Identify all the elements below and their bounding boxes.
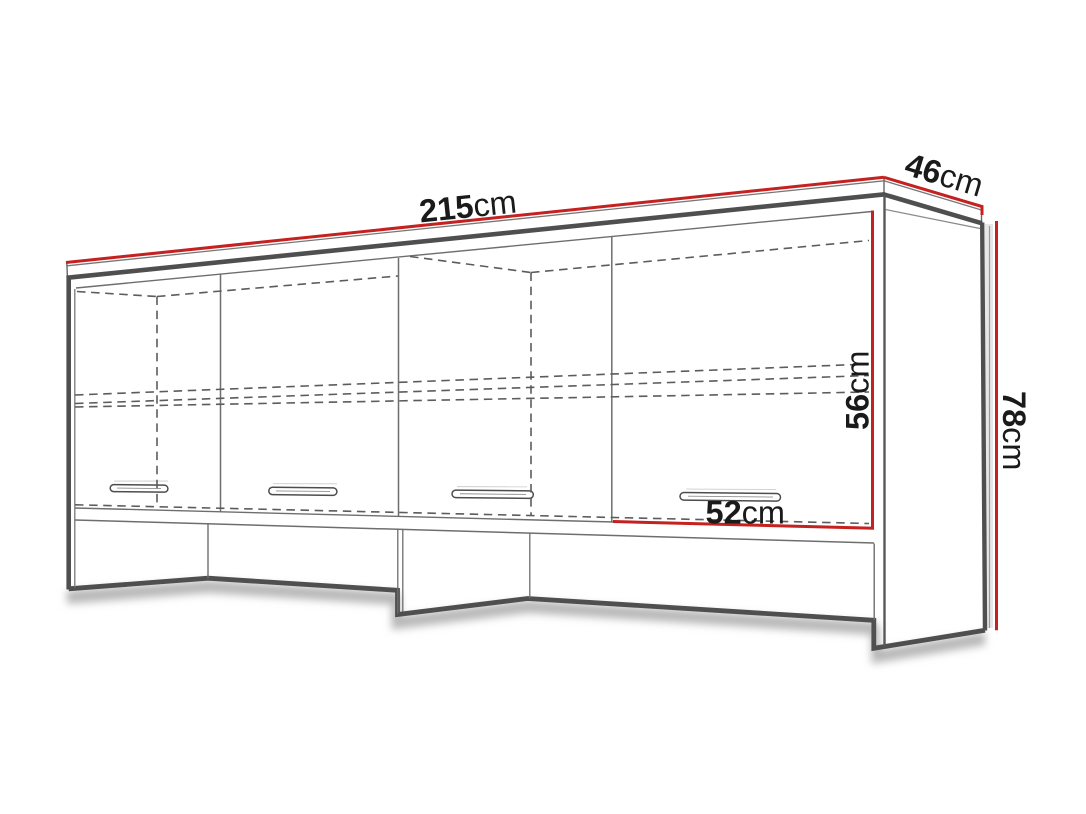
- svg-text:52cm: 52cm: [706, 495, 785, 531]
- svg-text:78cm: 78cm: [996, 391, 1032, 470]
- svg-text:56cm: 56cm: [840, 351, 876, 430]
- svg-text:215cm: 215cm: [417, 184, 518, 230]
